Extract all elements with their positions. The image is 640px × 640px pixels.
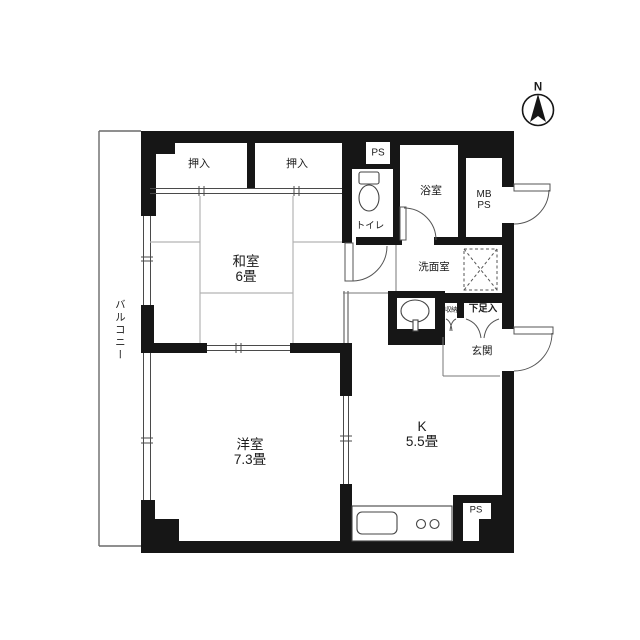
toilet-label: トイレ <box>356 222 385 233</box>
washitsu-size: 6畳 <box>233 269 260 284</box>
ps-bottom-label: PS <box>470 506 483 517</box>
washroom-label: 洗面室 <box>418 262 450 274</box>
kitchen-size: 5.5畳 <box>406 434 438 449</box>
balcony-label: バルコニー <box>113 299 125 362</box>
mbps-label: MB PS <box>477 189 492 211</box>
washitsu-name: 和室 <box>233 254 260 269</box>
washitsu-label: 和室 6畳 <box>233 254 260 284</box>
hall-door-leaf <box>345 243 353 281</box>
western-room-label: 洋室 7.3畳 <box>234 437 266 467</box>
washbasin-icon <box>401 300 429 322</box>
ps-top-label: PS <box>371 147 384 158</box>
floorplan-page: バルコニー 押入 押入 PS トイレ 浴室 MB PS 和室 6畳 洗面室 収納… <box>0 0 640 640</box>
north-arrow-icon <box>523 94 554 126</box>
closet-left-label: 押入 <box>188 158 210 170</box>
washbasin-faucet-icon <box>413 320 418 331</box>
western-room-name: 洋室 <box>234 437 266 452</box>
mb-label: MB <box>477 189 492 200</box>
storage-small-label: 収納 <box>445 306 457 313</box>
bath-label: 浴室 <box>420 185 442 197</box>
shoe-box-label: 下足入 <box>469 305 498 316</box>
western-room-size: 7.3畳 <box>234 452 266 467</box>
mb-ps-label: PS <box>477 200 492 211</box>
entrance-door-leaf <box>514 327 553 334</box>
toilet-bowl-icon <box>359 185 379 211</box>
burner-icon <box>417 520 426 529</box>
kitchen-sink-icon <box>357 512 397 534</box>
mbps-door-leaf <box>514 184 550 191</box>
kitchen-name: K <box>406 419 438 434</box>
bath-door-leaf <box>400 207 406 240</box>
toilet-tank-icon <box>359 172 379 184</box>
closet-right-label: 押入 <box>286 158 308 170</box>
floorplan-drawing <box>0 0 640 640</box>
burner-icon <box>430 520 439 529</box>
kitchen-label: K 5.5畳 <box>406 419 438 449</box>
entrance-label: 玄関 <box>472 346 493 358</box>
north-label: N <box>534 82 542 95</box>
